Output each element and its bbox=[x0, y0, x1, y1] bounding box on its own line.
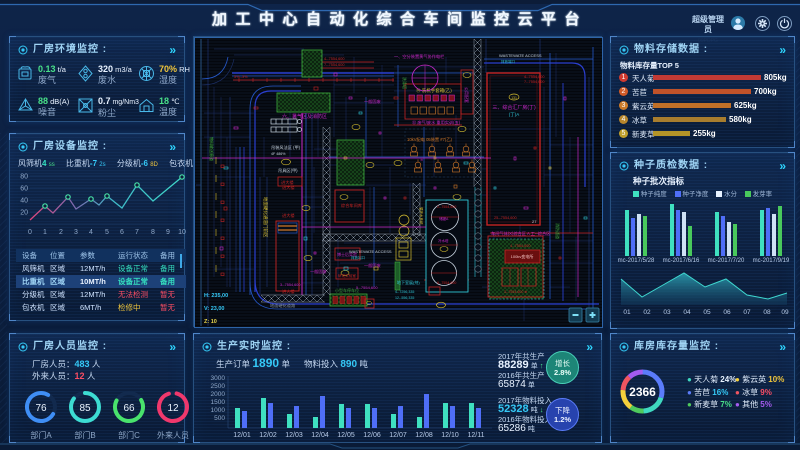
svg-text:10kV配电 05装置 #7(乙): 10kV配电 05装置 #7(乙) bbox=[407, 136, 453, 143]
svg-text:消防通道: 消防通道 bbox=[555, 223, 561, 239]
svg-text:㉒ 废气/废水 重用实训(五): ㉒ 废气/废水 重用实训(五) bbox=[412, 119, 461, 126]
svg-text:冷水塔: 冷水塔 bbox=[438, 238, 449, 243]
svg-text:六、暑气区及消防区: 六、暑气区及消防区 bbox=[282, 113, 327, 120]
svg-text:综合车间库: 综合车间库 bbox=[341, 202, 362, 209]
svg-text:1500: 1500 bbox=[211, 399, 226, 406]
svg-text:85: 85 bbox=[79, 403, 91, 414]
svg-text:研发实验室: 研发实验室 bbox=[338, 273, 356, 278]
svg-text:05: 05 bbox=[703, 309, 711, 315]
svg-text:4--7256,335: 4--7256,335 bbox=[395, 290, 414, 294]
svg-text:03: 03 bbox=[663, 309, 671, 315]
svg-text:一、空分装置黄气协作电栏: 一、空分装置黄气协作电栏 bbox=[394, 53, 444, 60]
svg-text:2366: 2366 bbox=[629, 385, 656, 399]
svg-text:一般固废: 一般固废 bbox=[310, 268, 327, 275]
svg-text:5: 5 bbox=[105, 229, 109, 236]
svg-text:80: 80 bbox=[20, 174, 28, 181]
svg-text:12/05: 12/05 bbox=[337, 432, 355, 439]
svg-text:12/01: 12/01 bbox=[233, 432, 251, 439]
svg-text:mc-2017/6/16: mc-2017/6/16 bbox=[663, 258, 700, 264]
svg-text:3--7554,600: 3--7554,600 bbox=[280, 283, 300, 287]
svg-text:3: 3 bbox=[74, 229, 78, 236]
svg-text:08: 08 bbox=[763, 309, 771, 315]
svg-text:09: 09 bbox=[781, 309, 789, 315]
svg-text:02: 02 bbox=[643, 309, 651, 315]
svg-text:V: 23,00: V: 23,00 bbox=[204, 306, 225, 312]
svg-text:5--7554,600: 5--7554,600 bbox=[356, 285, 378, 290]
svg-text:储罐A: 储罐A bbox=[439, 216, 449, 221]
svg-text:地面硬化道路: 地面硬化道路 bbox=[270, 302, 296, 309]
svg-text:76: 76 bbox=[35, 403, 47, 414]
svg-text:12/03: 12/03 bbox=[285, 432, 303, 439]
svg-text:博士后实验: 博士后实验 bbox=[337, 251, 357, 257]
svg-text:12: 12 bbox=[167, 403, 179, 414]
svg-text:0: 0 bbox=[28, 229, 32, 236]
svg-text:5%--3%: 5%--3% bbox=[234, 75, 248, 79]
svg-text:2000: 2000 bbox=[211, 391, 226, 398]
svg-text:20: 20 bbox=[20, 210, 28, 217]
svg-text:7--7554,600: 7--7554,600 bbox=[524, 80, 544, 84]
svg-text:mc-2017/7/20: mc-2017/7/20 bbox=[708, 258, 745, 264]
svg-text:排放端口: 排放端口 bbox=[501, 59, 515, 64]
svg-text:吊装风法区 (甲): 吊装风法区 (甲) bbox=[271, 144, 301, 151]
svg-text:25--7554,600: 25--7554,600 bbox=[494, 216, 517, 220]
svg-text:2--7554,600: 2--7554,600 bbox=[437, 205, 456, 209]
svg-text:07: 07 bbox=[743, 309, 751, 315]
svg-text:40: 40 bbox=[20, 198, 28, 205]
svg-text:12--556,335: 12--556,335 bbox=[395, 296, 414, 300]
svg-text:12/02: 12/02 bbox=[259, 432, 277, 439]
svg-text:9: 9 bbox=[166, 229, 170, 236]
svg-text:三、综合汇厂房(丁): 三、综合汇厂房(丁) bbox=[492, 104, 536, 111]
svg-text:9--7554,600: 9--7554,600 bbox=[437, 281, 456, 285]
svg-text:131: 131 bbox=[511, 96, 517, 100]
svg-text:进大楼: 进大楼 bbox=[282, 288, 295, 295]
svg-text:一般固废: 一般固废 bbox=[364, 98, 381, 105]
svg-text:06: 06 bbox=[723, 309, 731, 315]
svg-text:66: 66 bbox=[123, 403, 135, 414]
svg-text:1000: 1000 bbox=[211, 407, 226, 414]
svg-text:12/07: 12/07 bbox=[389, 432, 407, 439]
svg-text:3000: 3000 bbox=[211, 375, 226, 382]
svg-text:12/08: 12/08 bbox=[415, 432, 433, 439]
svg-text:mc-2017/5/28: mc-2017/5/28 bbox=[618, 258, 655, 264]
svg-text:公用配套: 公用配套 bbox=[464, 87, 470, 103]
svg-text:地面硬化通道门前区: 地面硬化通道门前区 bbox=[262, 197, 269, 238]
svg-text:6: 6 bbox=[120, 229, 124, 236]
svg-text:(丁)A: (丁)A bbox=[509, 112, 520, 117]
svg-text:01: 01 bbox=[623, 309, 631, 315]
svg-text:3--7554,600 ⊕: 3--7554,600 ⊕ bbox=[504, 290, 527, 294]
svg-text:小型车停车位: 小型车停车位 bbox=[335, 287, 359, 293]
svg-text:4--7554,600: 4--7554,600 bbox=[324, 57, 344, 61]
svg-text:2: 2 bbox=[59, 229, 63, 236]
svg-text:7: 7 bbox=[135, 229, 139, 236]
svg-text:12/11: 12/11 bbox=[468, 432, 485, 439]
svg-text:H: 235,00: H: 235,00 bbox=[204, 293, 228, 299]
svg-text:Z: 10: Z: 10 bbox=[204, 319, 217, 325]
svg-text:循环水系统: 循环水系统 bbox=[419, 207, 424, 225]
svg-text:7--7554,600: 7--7554,600 bbox=[324, 63, 344, 67]
svg-text:mc-2017/9/19: mc-2017/9/19 bbox=[753, 258, 789, 264]
svg-text:8: 8 bbox=[151, 229, 155, 236]
svg-text:10: 10 bbox=[178, 229, 186, 236]
svg-text:500: 500 bbox=[214, 415, 225, 422]
svg-text:12/06: 12/06 bbox=[363, 432, 381, 439]
svg-text:60: 60 bbox=[20, 186, 28, 193]
svg-text:12/04: 12/04 bbox=[311, 432, 329, 439]
svg-text:1: 1 bbox=[43, 229, 47, 236]
svg-text:12/10: 12/10 bbox=[441, 432, 459, 439]
svg-text:100kv变电所: 100kv变电所 bbox=[511, 253, 534, 259]
svg-text:地下室展(剂): 地下室展(剂) bbox=[397, 279, 420, 285]
svg-text:物料输送廊道: 物料输送廊道 bbox=[209, 137, 215, 161]
svg-text:进大楼: 进大楼 bbox=[282, 212, 295, 219]
svg-text:4: 4 bbox=[89, 229, 93, 236]
svg-text:4F 486%: 4F 486% bbox=[271, 152, 286, 156]
svg-text:WASTEWATE ACCESS: WASTEWATE ACCESS bbox=[499, 53, 542, 58]
svg-text:4--7554,600: 4--7554,600 bbox=[510, 244, 530, 248]
svg-text:进大楼: 进大楼 bbox=[282, 184, 295, 191]
svg-text:4--7554,600: 4--7554,600 bbox=[524, 75, 544, 79]
svg-text:04: 04 bbox=[683, 309, 691, 315]
svg-text:27: 27 bbox=[532, 219, 537, 224]
svg-text:2500: 2500 bbox=[211, 383, 226, 390]
svg-text:进大楼: 进大楼 bbox=[281, 179, 294, 186]
svg-text:洗涤塔: 洗涤塔 bbox=[402, 77, 408, 89]
